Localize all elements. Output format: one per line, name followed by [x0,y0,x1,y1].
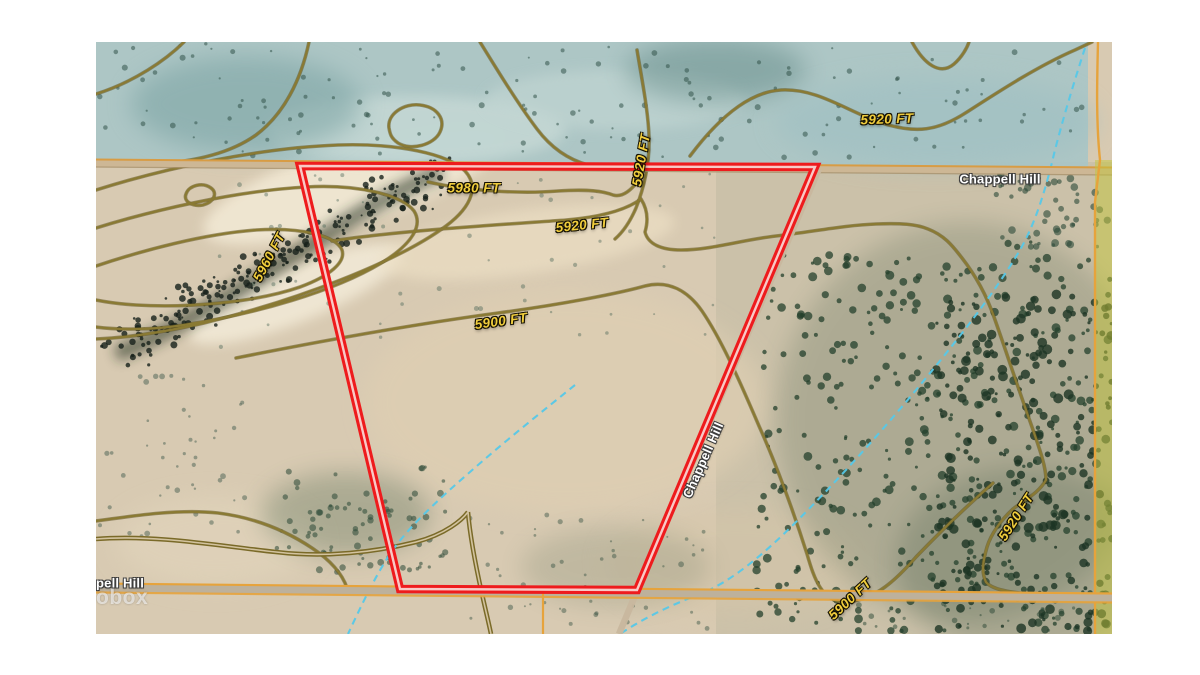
terrain-layer [96,42,1112,634]
map-viewport[interactable]: 5920 FT 5980 FT 5920 FT 5900 FT 5960 FT … [96,42,1112,634]
mapbox-watermark[interactable]: obox [96,586,148,610]
screenshot-canvas: 5920 FT 5980 FT 5920 FT 5900 FT 5960 FT … [0,0,1200,675]
contour-label-nw-5980: 5980 FT [447,181,500,196]
contour-label-ne-5920: 5920 FT [860,111,914,128]
road-label-chappell-hill-top: Chappell Hill [959,172,1040,187]
water-tint-band [96,42,1096,170]
